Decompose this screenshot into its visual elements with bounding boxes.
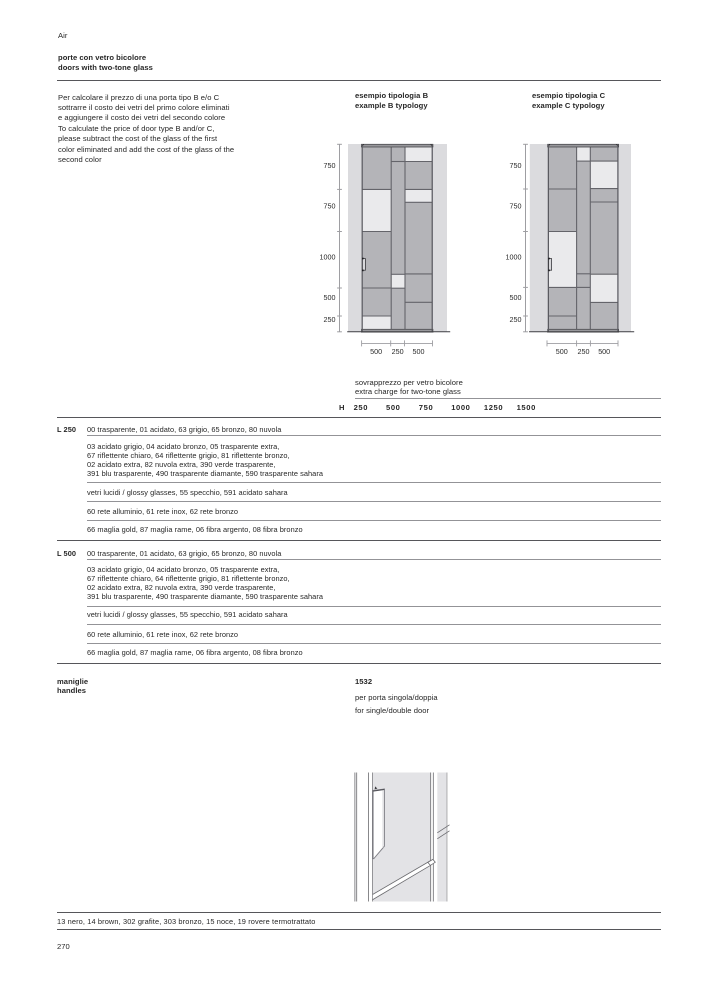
svg-text:750: 750 — [510, 202, 522, 211]
svg-text:250: 250 — [324, 315, 336, 324]
svg-text:250: 250 — [578, 347, 590, 356]
svg-text:500: 500 — [556, 347, 568, 356]
svg-text:500: 500 — [324, 293, 336, 302]
svg-text:500: 500 — [510, 293, 522, 302]
svg-text:250: 250 — [510, 315, 522, 324]
svg-text:750: 750 — [324, 161, 336, 170]
svg-text:500: 500 — [370, 347, 382, 356]
svg-text:1000: 1000 — [320, 252, 336, 261]
svg-text:500: 500 — [413, 347, 425, 356]
svg-text:500: 500 — [598, 347, 610, 356]
svg-text:750: 750 — [324, 202, 336, 211]
svg-text:750: 750 — [510, 161, 522, 170]
svg-text:250: 250 — [392, 347, 404, 356]
svg-text:1000: 1000 — [506, 252, 522, 261]
